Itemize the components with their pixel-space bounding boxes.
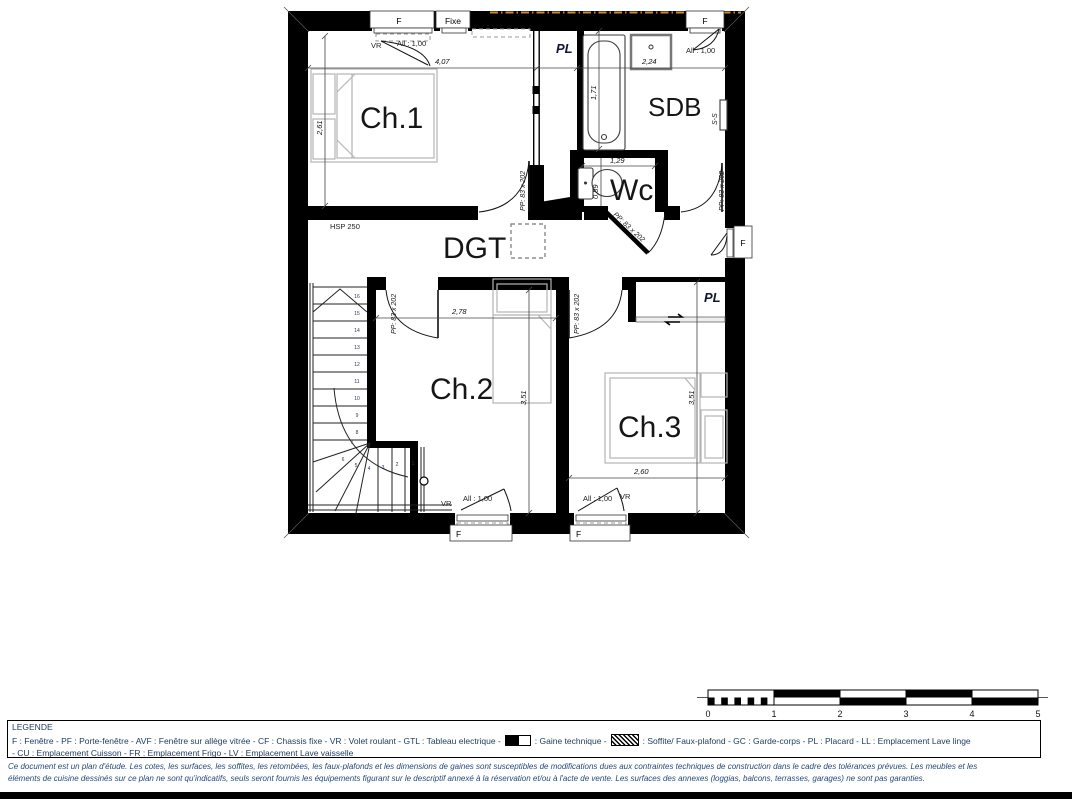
- svg-text:3: 3: [382, 465, 385, 471]
- floor-plan-page: F VR All : 1,00 Fixe F All : 1,00 F VR A…: [0, 0, 1072, 800]
- svg-text:14: 14: [354, 328, 360, 334]
- room-label-dgt: DGT: [443, 232, 506, 265]
- disclaimer-line-1: Ce document est un plan d'étude. Les cot…: [8, 761, 1068, 773]
- dim-ch3-height: 3,51: [687, 390, 696, 405]
- room-labels: Ch.1 SDB Wc DGT Ch.2 Ch.3 PL PL HSP 250 …: [330, 41, 721, 444]
- legend-line-2: - CU : Emplacement Cuisson - FR : Emplac…: [12, 748, 1036, 758]
- scale-bar: 0 1 2 3 4 5: [697, 690, 1048, 718]
- window-label-f: F: [740, 238, 745, 248]
- dim-wc-depth: 0,89: [591, 184, 600, 199]
- dim-ch1-height: 2,61: [315, 120, 324, 136]
- svg-text:0: 0: [705, 709, 710, 718]
- towel-radiator: [720, 100, 727, 130]
- dim-wc-width: 1,29: [610, 156, 625, 165]
- vr-label: VR: [371, 41, 382, 50]
- placard-label-ch3: PL: [704, 290, 721, 305]
- window-top-right-f: F All : 1,00: [686, 11, 724, 55]
- pp-label-ch3: PP: 83 x 202: [574, 294, 581, 334]
- room-label-ch2: Ch.2: [430, 373, 493, 406]
- stair-newel-post: [420, 477, 428, 485]
- window-bottom-right-f: F All : 1,00 VR: [570, 488, 631, 541]
- svg-text:1: 1: [412, 461, 415, 467]
- room-label-ch3: Ch.3: [618, 411, 681, 444]
- disclaimer: Ce document est un plan d'étude. Les cot…: [8, 761, 1068, 786]
- dim-ch1-width: 4,07: [435, 57, 450, 66]
- room-label-ch1: Ch.1: [360, 102, 423, 135]
- allege-label: All : 1,00: [463, 494, 492, 503]
- svg-text:2: 2: [837, 709, 842, 718]
- vr-label: VR: [441, 499, 452, 508]
- legend-line1-part1: F : Fenêtre - PF : Porte-fenêtre - AVF :…: [12, 736, 501, 746]
- bottom-border-bar: [0, 792, 1072, 799]
- stair-break-mark: [313, 289, 367, 312]
- window-right-wall-f: F: [711, 226, 752, 258]
- allege-label: All : 1,00: [397, 39, 426, 48]
- bed-ch2: [493, 279, 551, 403]
- svg-text:6: 6: [342, 457, 345, 463]
- disclaimer-line-2: éléments de cuisine dessinés sur ce plan…: [8, 773, 1068, 785]
- svg-text:15: 15: [354, 311, 360, 317]
- hsp-label: HSP 250: [330, 222, 360, 231]
- svg-text:5: 5: [1035, 709, 1040, 718]
- pp-label-wc: PP: 83 x 202: [612, 211, 646, 244]
- pp-label-ch2: PP: 83 x 202: [391, 294, 398, 334]
- towel-radiator-label: S-S: [712, 113, 719, 125]
- svg-text:9: 9: [356, 413, 359, 419]
- pp-label-sdb: PP: 83 x 202: [719, 171, 726, 211]
- dim-bath-length: 1,71: [589, 85, 598, 100]
- gaine-technique-symbol: [505, 735, 531, 746]
- svg-text:13: 13: [354, 345, 360, 351]
- placard-label-top: PL: [556, 41, 573, 56]
- room-label-sdb: SDB: [648, 92, 701, 122]
- pp-label-ch1: PP: 83 x 202: [520, 171, 527, 211]
- svg-text:1: 1: [771, 709, 776, 718]
- floor-plan-drawing: F VR All : 1,00 Fixe F All : 1,00 F VR A…: [0, 0, 1072, 718]
- stair-winders: [313, 443, 405, 513]
- svg-text:11: 11: [354, 379, 359, 385]
- window-label-fixe: Fixe: [445, 16, 461, 26]
- vr-label: VR: [620, 492, 631, 501]
- dim-ch3-width: 2,60: [633, 467, 649, 476]
- svg-text:10: 10: [354, 396, 360, 402]
- svg-text:8: 8: [356, 430, 359, 436]
- soffite-hatch-symbol: [611, 734, 639, 746]
- svg-text:2: 2: [396, 462, 399, 468]
- dim-ch2-width: 2,78: [451, 307, 467, 316]
- dim-ch2-height: 3,51: [519, 390, 528, 405]
- svg-text:5: 5: [355, 463, 358, 469]
- window-label-f: F: [396, 16, 401, 26]
- allege-label: All : 1,00: [583, 494, 612, 503]
- svg-text:4: 4: [368, 466, 371, 472]
- legend-line-1: F : Fenêtre - PF : Porte-fenêtre - AVF :…: [12, 734, 1036, 748]
- dim-sdb-width: 2,24: [641, 57, 657, 66]
- placard-partition: [533, 31, 540, 168]
- svg-text:12: 12: [354, 362, 360, 368]
- gaine-technique-box: [511, 224, 545, 258]
- scale-bar-numbers: 0 1 2 3 4 5: [705, 709, 1040, 718]
- legend-box: LEGENDE F : Fenêtre - PF : Porte-fenêtre…: [7, 720, 1041, 758]
- allege-label: All : 1,00: [686, 46, 715, 55]
- doors: [386, 161, 722, 338]
- legend-title: LEGENDE: [12, 722, 1036, 734]
- window-label-f: F: [576, 529, 581, 539]
- svg-text:3: 3: [903, 709, 908, 718]
- sliding-door-placard: [636, 314, 725, 325]
- window-top-left-f: F VR All : 1,00: [370, 11, 434, 66]
- window-label-f: F: [456, 529, 461, 539]
- window-label-f: F: [702, 16, 707, 26]
- svg-text:7: 7: [351, 440, 354, 446]
- legend-line1-part2: : Gaine technique -: [535, 736, 607, 746]
- svg-text:4: 4: [969, 709, 974, 718]
- legend-line1-part3: : Soffite/ Faux-plafond - GC : Garde-cor…: [643, 736, 971, 746]
- svg-text:16: 16: [354, 294, 360, 300]
- room-label-wc: Wc: [610, 174, 653, 207]
